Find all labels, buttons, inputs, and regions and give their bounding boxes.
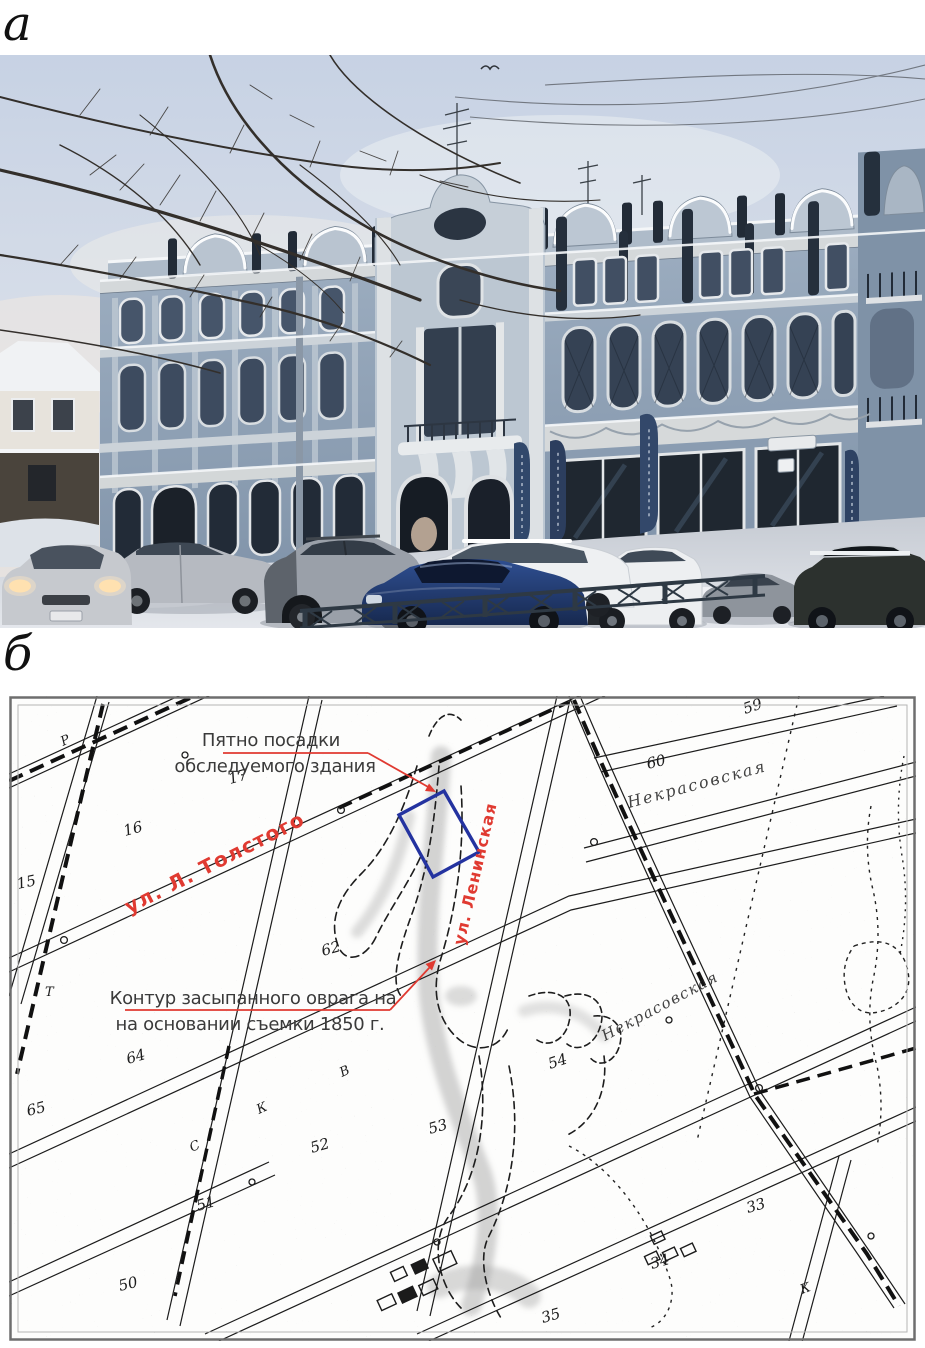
- archival-map-svg: 15 16 17 59 60 62 64 65 50 51 52 53 54 3…: [9, 696, 916, 1341]
- street-letter: Т: [45, 985, 55, 1000]
- neighbour-house: [0, 341, 100, 567]
- building-photo-svg: [0, 55, 925, 628]
- building-note-line2: обследуемого здания: [174, 756, 375, 777]
- building-photo: [0, 55, 925, 628]
- corner-bay: [858, 148, 925, 557]
- archival-map: 15 16 17 59 60 62 64 65 50 51 52 53 54 3…: [9, 696, 916, 1341]
- subfigure-a-label: а: [3, 0, 32, 48]
- ravine-note-line2: на основании съемки 1850 г.: [116, 1014, 385, 1035]
- ravine-note-line1: Контур засыпанного оврага на: [110, 988, 397, 1009]
- building-note-line1: Пятно посадки: [202, 730, 340, 751]
- house-number-plate: [778, 458, 794, 472]
- street-sign: [768, 435, 816, 451]
- subfigure-b-label: б: [3, 630, 32, 678]
